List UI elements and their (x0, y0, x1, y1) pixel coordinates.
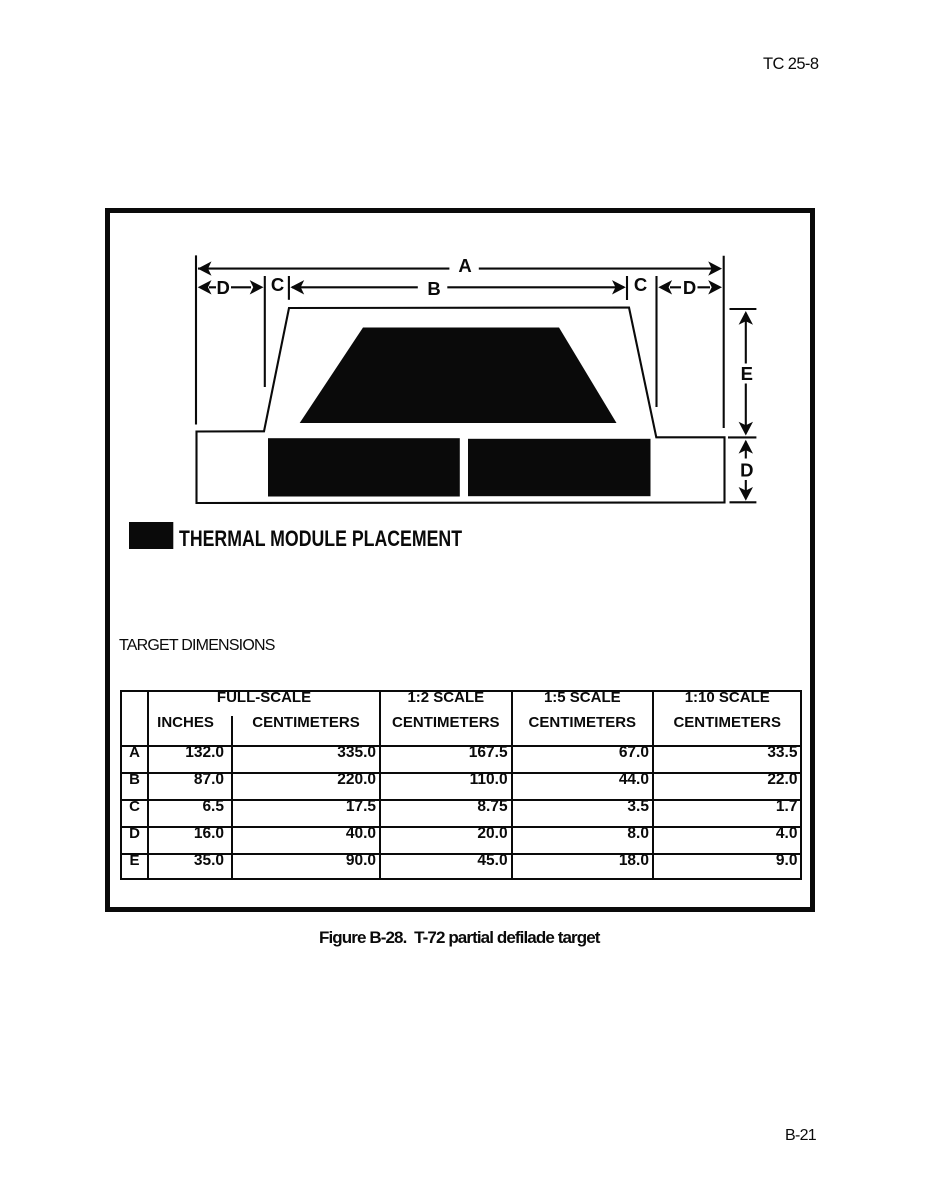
svg-text:E: E (741, 363, 753, 384)
svg-text:D: D (217, 277, 230, 298)
svg-text:A: A (458, 255, 471, 276)
svg-text:D: D (740, 459, 753, 480)
svg-text:C: C (634, 274, 647, 295)
svg-text:B: B (427, 278, 440, 299)
svg-text:D: D (683, 277, 696, 298)
svg-text:C: C (271, 274, 284, 295)
